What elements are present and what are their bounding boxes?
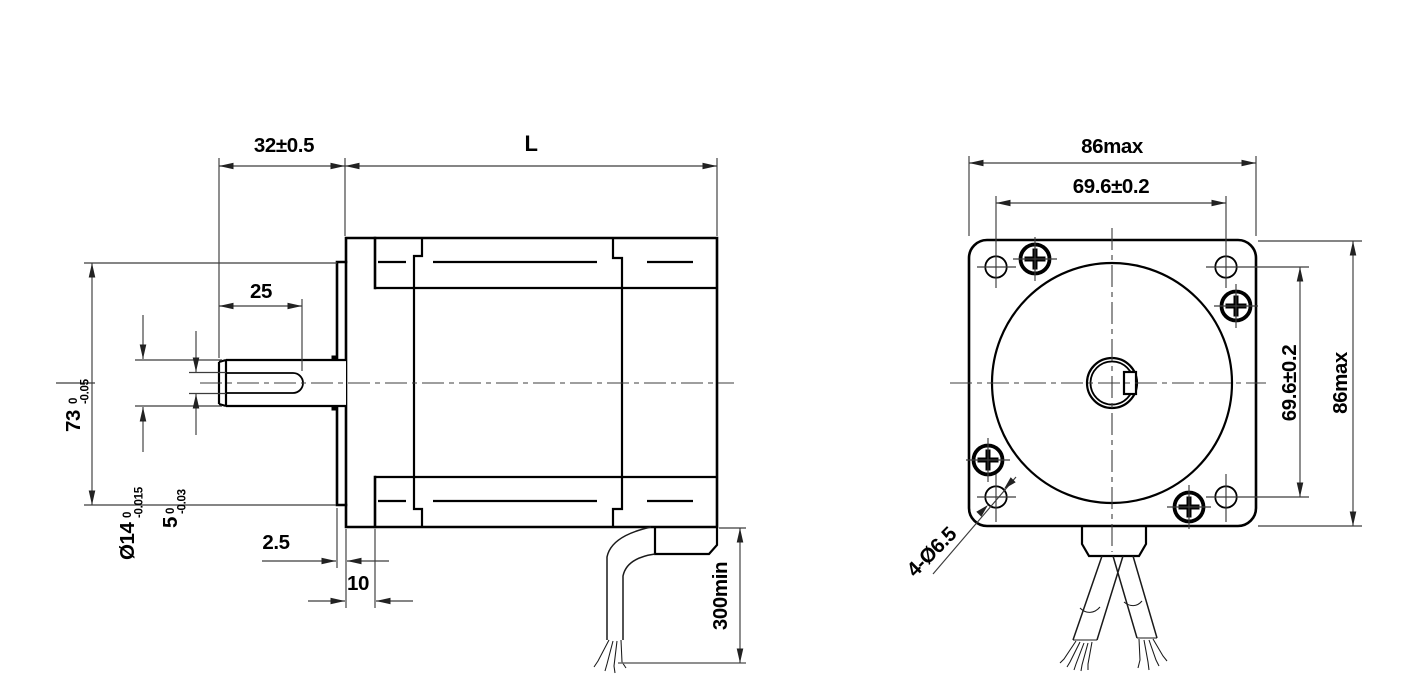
hole-centerline-ticks [977, 267, 1226, 522]
dim-hole-spacing-vertical: 69.6±0.2 [1278, 267, 1301, 497]
leader-arrow-lower [976, 505, 988, 517]
front-view: 86max 69.6±0.2 69.6±0.2 86max 4-Ø6.5 [902, 135, 1362, 671]
dim-shaft-flat-tol-lower: -0.03 [177, 489, 189, 514]
wire-strands [594, 640, 626, 673]
dim-body-height: 86max [1329, 241, 1353, 526]
dim-pilot-diameter-tol-upper: 0 [68, 398, 80, 404]
tie-rod-slot-lines [378, 262, 693, 501]
dim-hole-spacing-vertical-label: 69.6±0.2 [1278, 345, 1301, 421]
front-lead-wires [1060, 556, 1167, 671]
dim-pilot-diameter-tol-lower: -0.05 [80, 378, 92, 404]
lead-exit-box [655, 527, 717, 554]
dim-body-height-label: 86max [1329, 351, 1352, 414]
dim-hole-spacing-horizontal-label: 69.6±0.2 [1073, 175, 1149, 198]
dim-front-cap-width: 10 [308, 572, 413, 601]
dim-body-width-label: 86max [1081, 135, 1144, 158]
dim-pilot-diameter: 73 0 -0.05 [62, 263, 92, 505]
dim-shaft-flat-value: 5 [159, 517, 182, 528]
dim-shaft-diameter-tol-lower: -0.015 [134, 486, 146, 518]
cable-break-marks [1080, 601, 1142, 612]
dim-pilot-diameter-value: 73 [62, 410, 85, 432]
side-view: 32±0.5 L 25 73 0 -0.05 Ø14 0 -0.015 [56, 131, 746, 673]
mounting-holes [977, 256, 1237, 522]
screw-top-left [1013, 237, 1057, 281]
dim-hole-spacing-horizontal: 69.6±0.2 [996, 175, 1226, 203]
dim-shaft-diameter-tol-upper: 0 [122, 512, 134, 518]
dim-shaft-diameter: Ø14 0 -0.015 [116, 315, 146, 560]
dim-flat-length-label: 25 [250, 280, 272, 303]
screw-bottom-left [966, 438, 1010, 482]
dim-motor-length: L [345, 131, 717, 166]
dim-flat-length: 25 [219, 280, 302, 306]
side-lead-wires [594, 527, 655, 673]
front-cable-gland [1082, 527, 1146, 556]
dim-pilot-depth: 2.5 [262, 531, 389, 561]
extension-lines [969, 156, 1362, 526]
cable-cut-lines [1073, 638, 1157, 640]
wire-strands [1060, 639, 1167, 671]
dim-body-width: 86max [969, 135, 1256, 163]
screw-bottom-right [1167, 485, 1211, 529]
dim-motor-length-label: L [524, 131, 537, 156]
dim-shaft-extension: 32±0.5 [219, 134, 345, 166]
dim-shaft-flat-tol-upper: 0 [165, 508, 177, 514]
screw-top-right [1214, 284, 1258, 328]
dim-shaft-extension-label: 32±0.5 [254, 134, 314, 157]
dim-pilot-depth-label: 2.5 [262, 531, 289, 554]
dim-front-cap-width-label: 10 [347, 572, 369, 595]
dim-lead-wire-length-label: 300min [709, 562, 732, 630]
dim-shaft-diameter-value: Ø14 [116, 521, 139, 560]
dim-mounting-holes-callout: 4-Ø6.5 [902, 477, 1016, 582]
motor-dimension-drawing: 32±0.5 L 25 73 0 -0.05 Ø14 0 -0.015 [0, 0, 1401, 682]
technical-drawing-canvas: 32±0.5 L 25 73 0 -0.05 Ø14 0 -0.015 [0, 0, 1401, 682]
side-motor-body [332, 238, 718, 554]
